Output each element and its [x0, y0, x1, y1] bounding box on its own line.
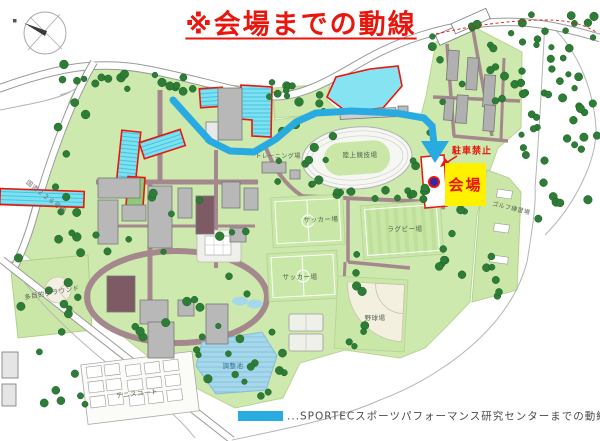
- venue-label: 会場: [448, 174, 482, 195]
- page-title: ※会場までの動線: [185, 12, 416, 39]
- label-soccer-upper: サッカー場: [303, 216, 338, 224]
- campus-map-graphic: [0, 0, 600, 441]
- label-athletics-track: 陸上競技場: [343, 152, 378, 159]
- venue-marker-dot: [429, 177, 439, 187]
- small-pond: [247, 300, 263, 309]
- label-soccer-lower: サッカー場: [283, 274, 318, 281]
- label-rugby-field: ラグビー場: [388, 226, 423, 233]
- legend-route-swatch: [238, 411, 283, 421]
- label-baseball-field: 野球場: [365, 315, 386, 322]
- no-parking-label: 駐車禁止: [452, 148, 492, 157]
- legend-text: ...SPORTECスポーツパフォーマンス研究センターまでの動線: [287, 409, 600, 424]
- campus-route-map: ※会場までの動線 陸上競技場 トレーニング場 サッカー場 ラグビー場 サッカー場…: [0, 0, 600, 441]
- label-training-ground: トレーニング場: [255, 154, 301, 160]
- label-regulating-pond: 調整池: [223, 363, 244, 370]
- venue-highlight-box: 会場: [445, 163, 486, 206]
- small-pond: [232, 297, 248, 306]
